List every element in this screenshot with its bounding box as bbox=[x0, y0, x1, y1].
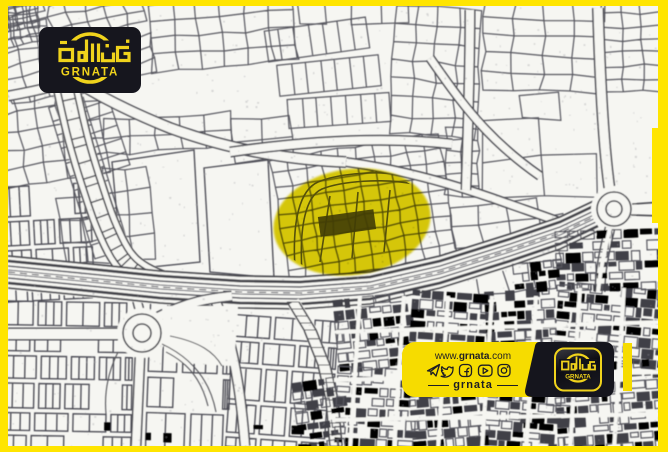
svg-text:GRNATA: GRNATA bbox=[61, 67, 119, 79]
svg-text:GRNATA: GRNATA bbox=[565, 374, 591, 381]
